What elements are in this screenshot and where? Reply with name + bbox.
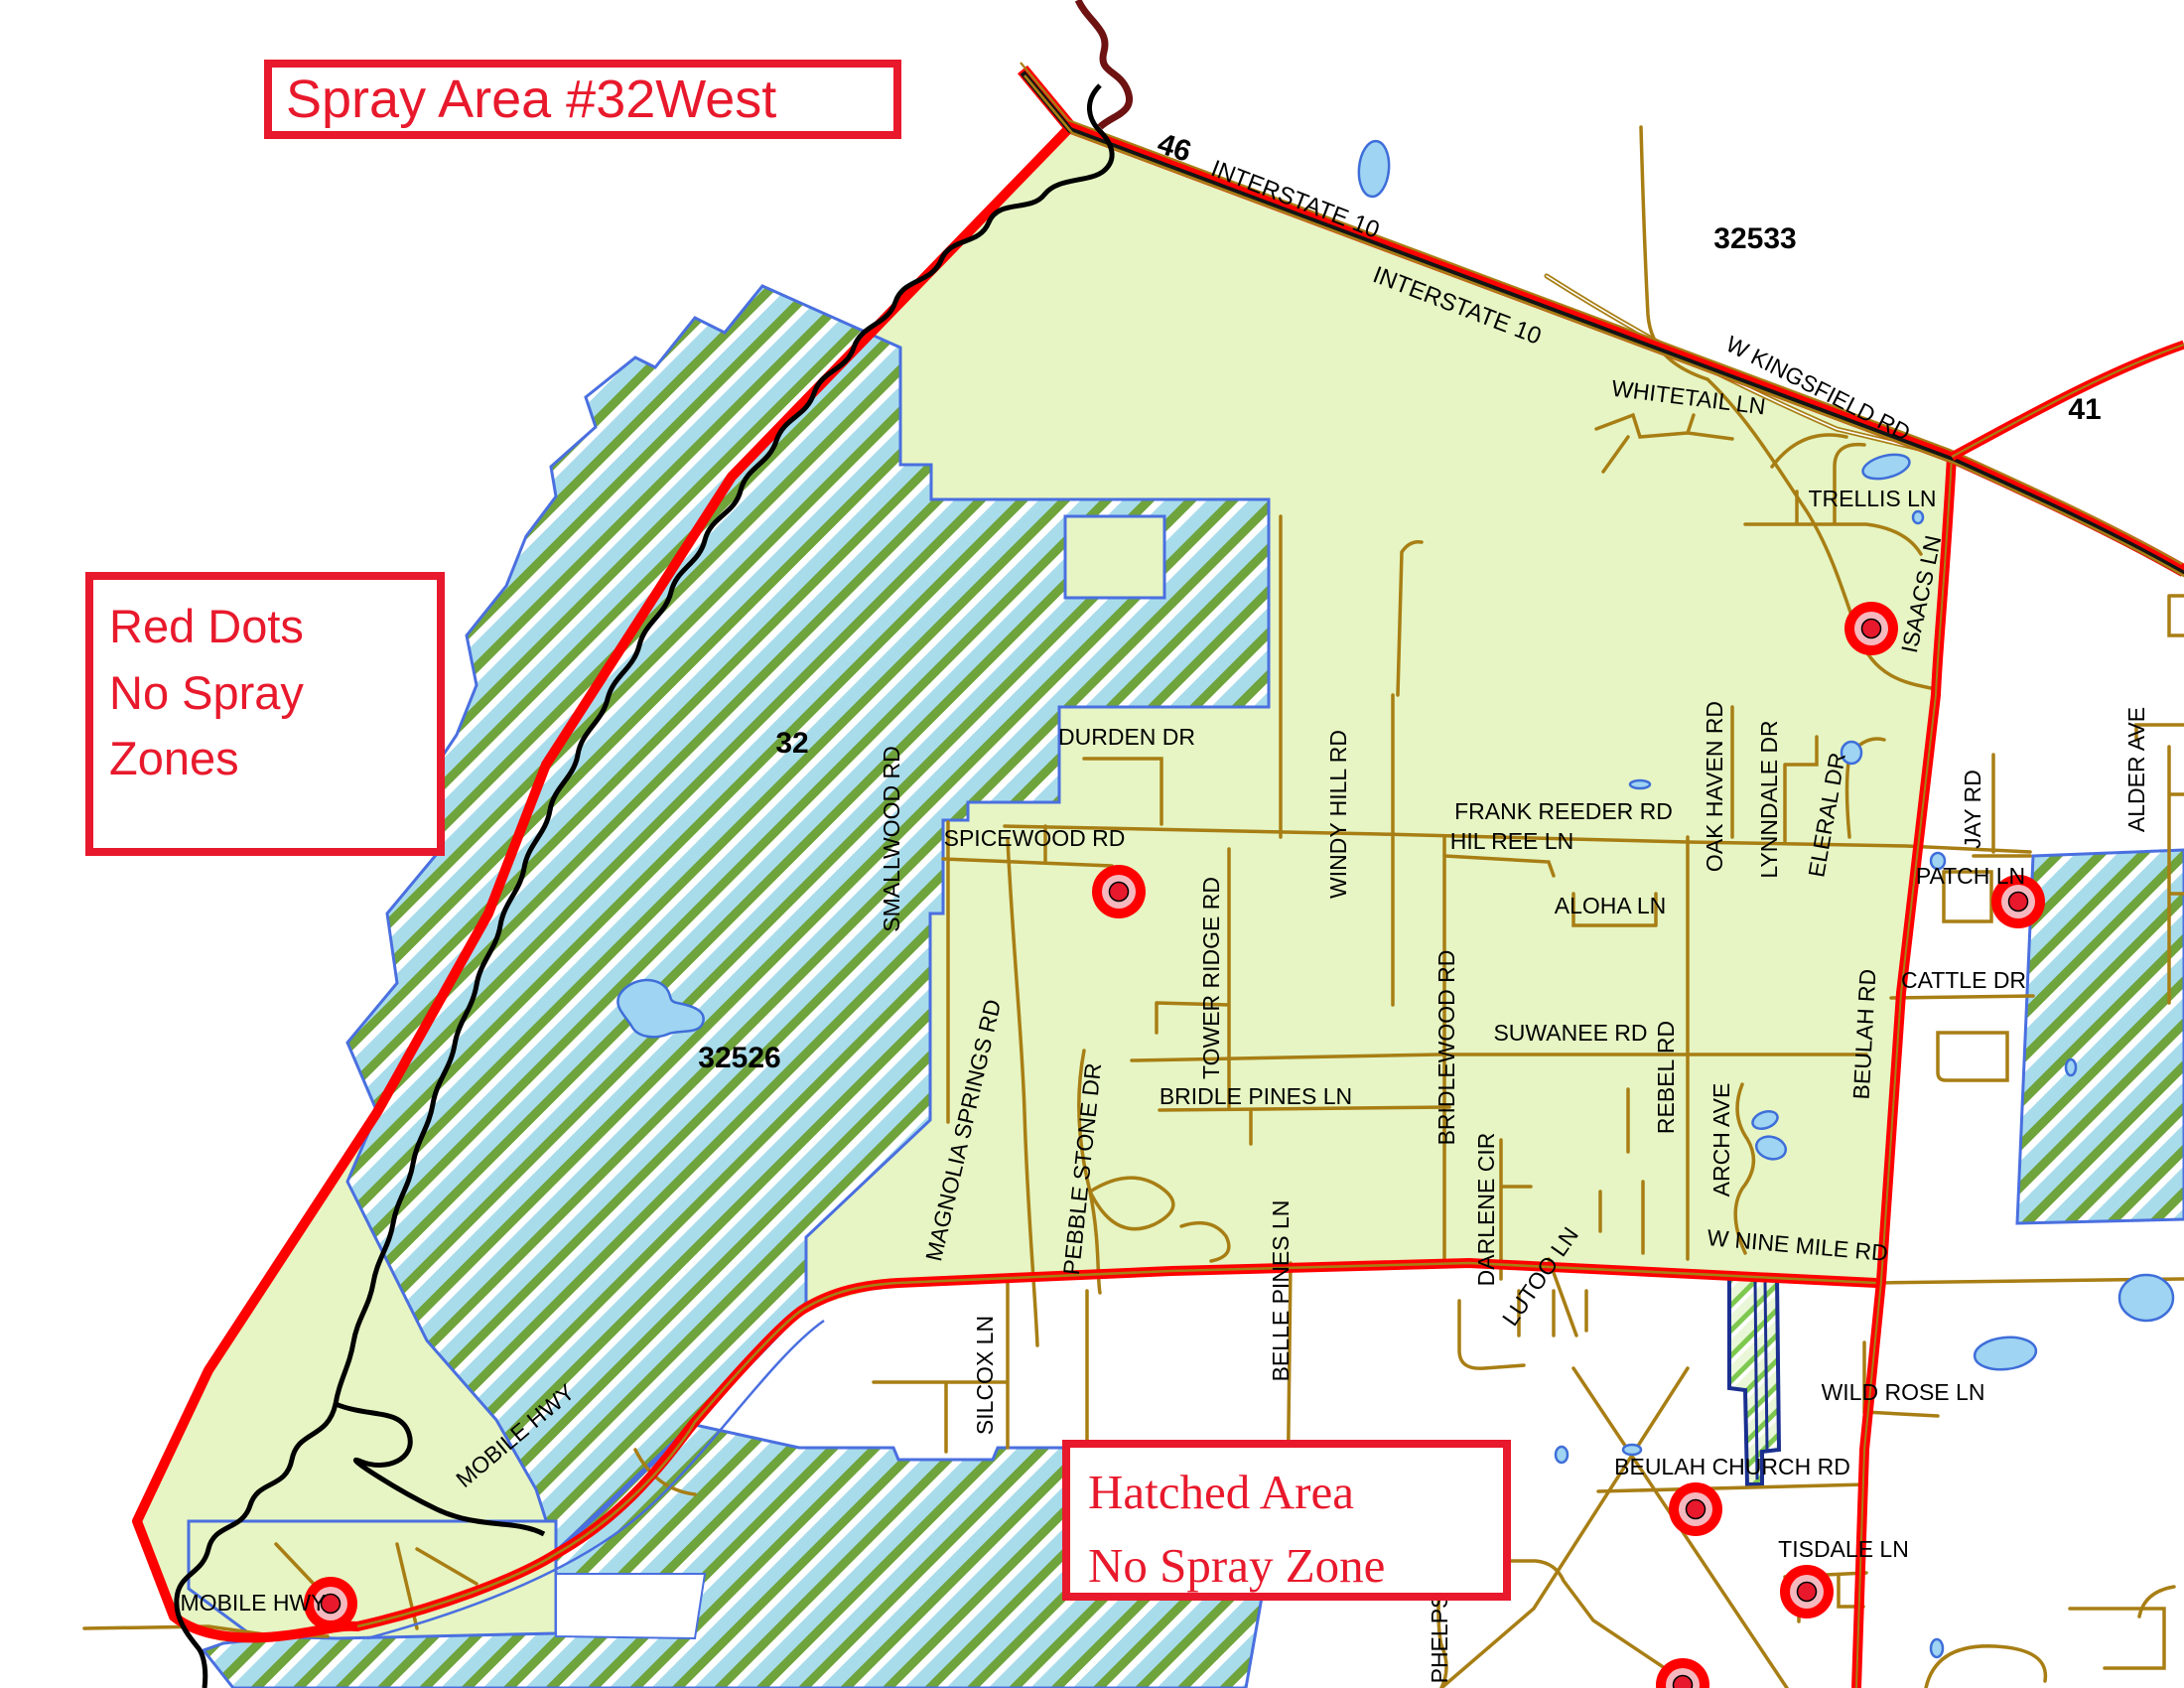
map-label-spicewood-rd: SPICEWOOD RD xyxy=(944,825,1126,851)
map-label-32: 32 xyxy=(775,727,808,760)
map-label-mobile-hwy: MOBILE HWY xyxy=(181,1590,327,1616)
pond xyxy=(1556,1447,1568,1463)
map-label-jay-rd: JAY RD xyxy=(1960,770,1985,849)
map-stage: 46INTERSTATE 10INTERSTATE 1032533W KINGS… xyxy=(0,0,2184,1688)
no-spray-dot-ring xyxy=(1862,620,1881,638)
pond xyxy=(1913,511,1923,523)
map-label-aloha-ln: ALOHA LN xyxy=(1555,893,1667,918)
river-upper-maroon xyxy=(1078,0,1130,127)
map-label-32533: 32533 xyxy=(1713,222,1796,255)
title-text: Spray Area #32West xyxy=(286,69,776,130)
legend-red-dots: Red Dots No Spray Zones xyxy=(85,572,445,856)
no-spray-dot xyxy=(1669,1482,1722,1536)
pond xyxy=(1973,1335,2037,1372)
map-label-smallwood-rd: SMALLWOOD RD xyxy=(879,746,904,931)
map-label-bridle-pines-ln: BRIDLE PINES LN xyxy=(1160,1083,1352,1109)
no-spray-dot xyxy=(1092,865,1146,918)
no-spray-dot-ring xyxy=(1110,883,1129,902)
legend-red-dots-line1: Red Dots xyxy=(109,594,437,660)
no-spray-dot-ring xyxy=(1798,1583,1817,1602)
map-label-arch-ave: ARCH AVE xyxy=(1708,1083,1734,1197)
legend-hatched-area: Hatched Area No Spray Zone xyxy=(1062,1440,1511,1601)
map-label-phelps: PHELPS xyxy=(1427,1594,1452,1684)
map-label-windy-hill-rd: WINDY HILL RD xyxy=(1325,730,1351,899)
no-spray-dot-ring xyxy=(1674,1676,1693,1688)
map-label-patch-ln: PATCH LN xyxy=(1916,863,2025,889)
no-spray-dot xyxy=(1780,1565,1834,1618)
pond xyxy=(2119,1275,2173,1321)
map-label-32526: 32526 xyxy=(698,1042,780,1074)
map-label-rebel-rd: REBEL RD xyxy=(1653,1021,1679,1134)
map-label-belle-pines-ln: BELLE PINES LN xyxy=(1268,1200,1294,1382)
pond xyxy=(2066,1059,2076,1075)
map-label-alder-ave: ALDER AVE xyxy=(2123,707,2149,832)
map-label-bridlewood-rd: BRIDLEWOOD RD xyxy=(1433,950,1459,1146)
pond xyxy=(1931,1639,1943,1657)
map-label-oak-haven-rd: OAK HAVEN RD xyxy=(1702,701,1727,872)
no-spray-dot xyxy=(1844,602,1898,655)
pond xyxy=(1357,140,1392,198)
map-label-darlene-cir: DARLENE CIR xyxy=(1473,1133,1499,1287)
map-label-trellis-ln: TRELLIS LN xyxy=(1808,486,1936,511)
map-label-cattle-dr: CATTLE DR xyxy=(1901,967,2026,993)
map-label-lynndale-dr: LYNNDALE DR xyxy=(1756,720,1782,878)
map-label-silcox-ln: SILCOX LN xyxy=(972,1316,998,1435)
legend-hatched-line1: Hatched Area xyxy=(1088,1456,1503,1529)
legend-red-dots-line3: Zones xyxy=(109,726,437,792)
map-label-wild-rose-ln: WILD ROSE LN xyxy=(1822,1379,1985,1405)
pond xyxy=(1630,780,1650,788)
map-label-tisdale-ln: TISDALE LN xyxy=(1778,1536,1909,1562)
legend-hatched-line2: No Spray Zone xyxy=(1088,1529,1503,1603)
no-spray-dot-ring xyxy=(2009,893,2028,912)
no-spray-dot xyxy=(1656,1658,1709,1688)
map-label-suwanee-rd: SUWANEE RD xyxy=(1493,1020,1647,1046)
white-pocket xyxy=(556,1574,705,1638)
map-label-41: 41 xyxy=(2068,393,2101,426)
map-label-durden-dr: DURDEN DR xyxy=(1058,724,1195,750)
map-label-beulah-church-rd: BEULAH CHURCH RD xyxy=(1614,1454,1850,1479)
map-label-frank-reeder-rd: FRANK REEDER RD xyxy=(1454,798,1673,824)
title-box: Spray Area #32West xyxy=(264,60,901,139)
map-label-tower-ridge-rd: TOWER RIDGE RD xyxy=(1198,877,1224,1079)
map-label-hil-ree-ln: HIL REE LN xyxy=(1450,828,1573,854)
no-spray-dot-ring xyxy=(1687,1500,1706,1519)
green-island-in-hatch xyxy=(1065,516,1164,598)
legend-red-dots-line2: No Spray xyxy=(109,660,437,727)
